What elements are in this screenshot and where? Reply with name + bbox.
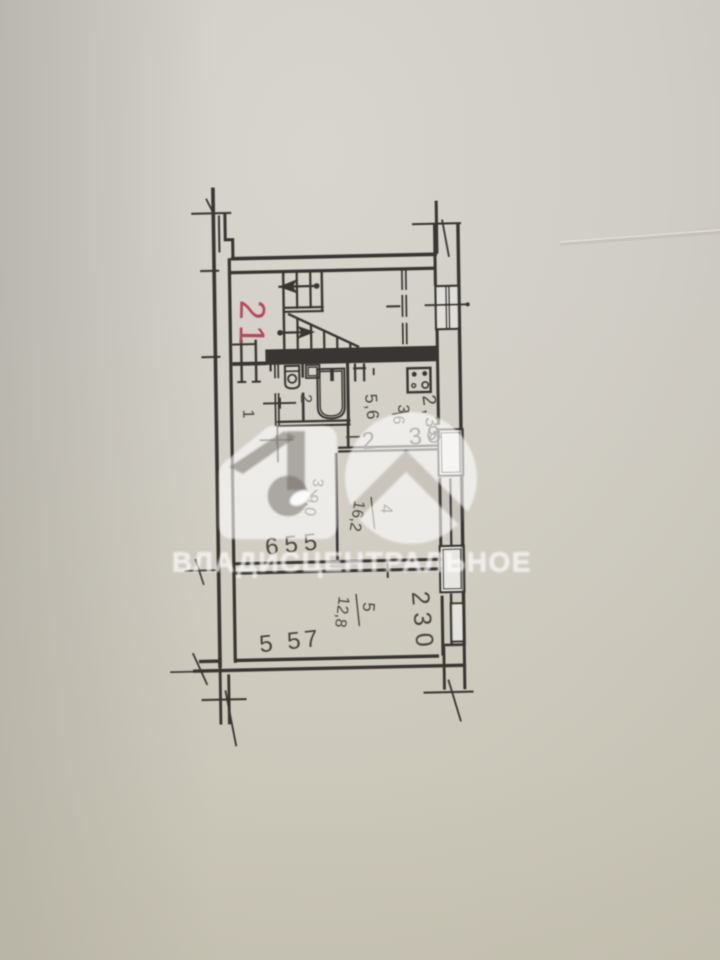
svg-text:5,6: 5,6	[361, 393, 382, 421]
svg-text:5: 5	[359, 602, 379, 613]
svg-text:230: 230	[406, 590, 439, 655]
svg-text:21: 21	[231, 300, 273, 351]
svg-text:1: 1	[239, 409, 256, 418]
svg-text:ВЛАДИСЦЕНТРАЛЬНОЕ: ВЛАДИСЦЕНТРАЛЬНОЕ	[172, 547, 532, 578]
svg-text:2: 2	[297, 394, 314, 403]
